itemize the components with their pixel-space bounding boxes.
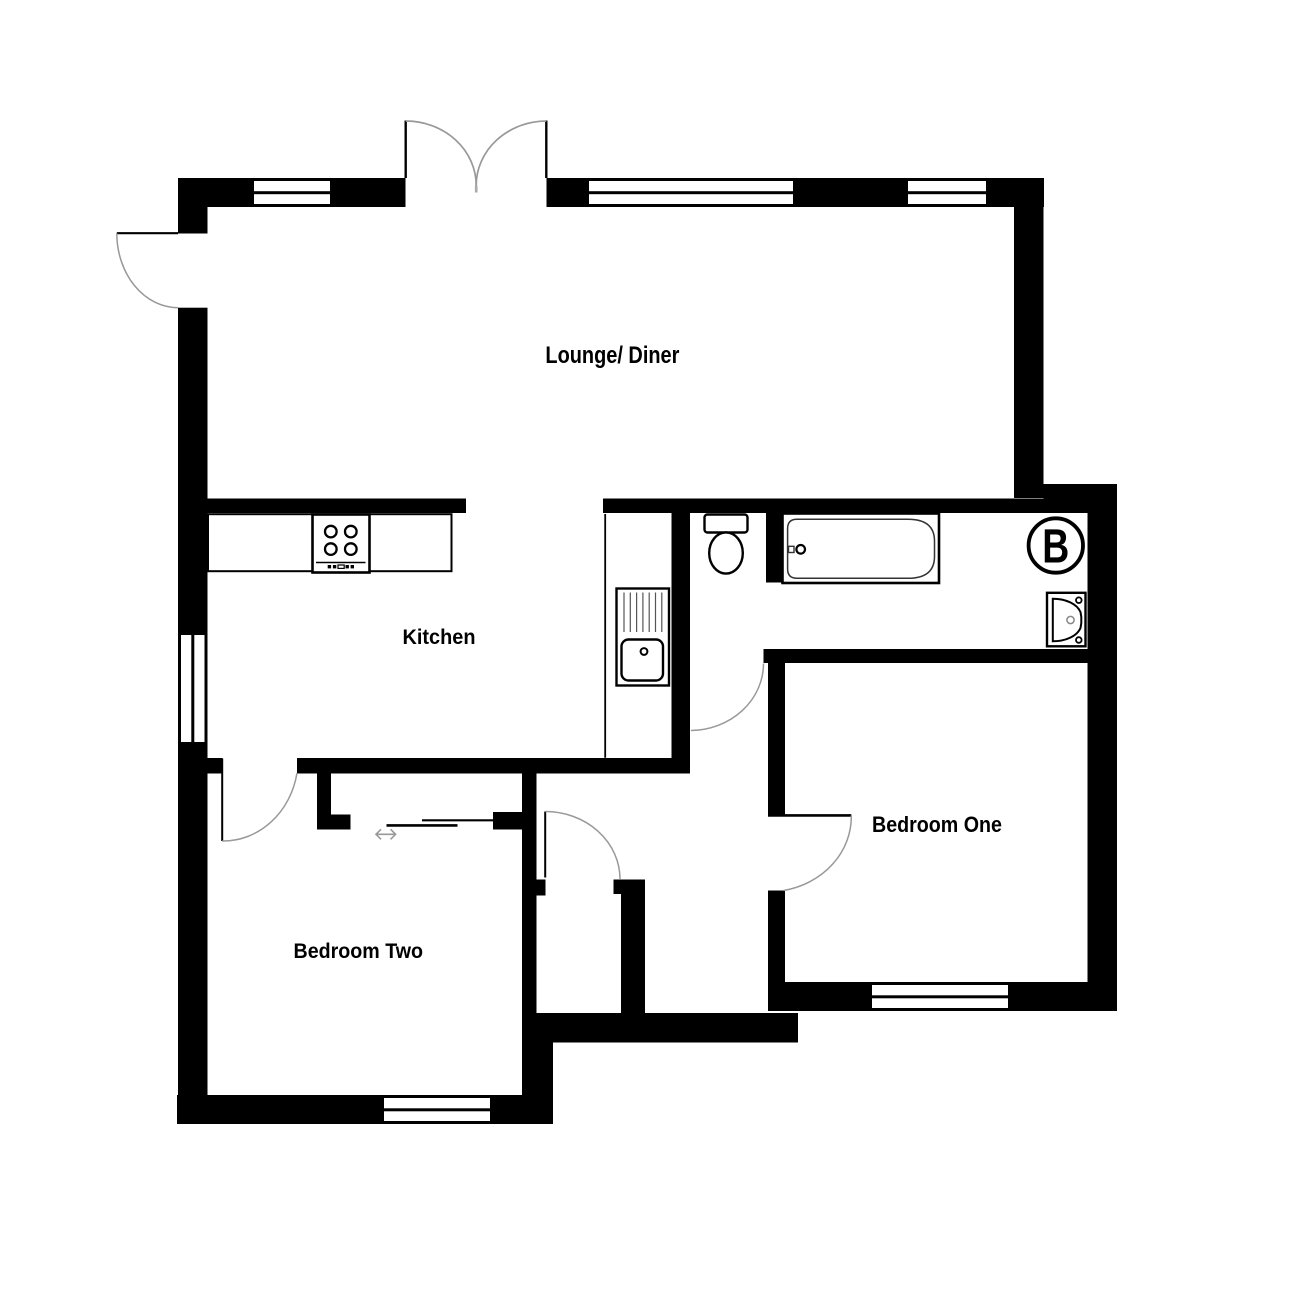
svg-text:Bedroom Two: Bedroom Two xyxy=(294,939,424,963)
svg-text:Bedroom One: Bedroom One xyxy=(872,812,1002,837)
svg-text:Kitchen: Kitchen xyxy=(403,625,476,649)
svg-text:B: B xyxy=(1042,521,1069,574)
svg-text:Lounge/ Diner: Lounge/ Diner xyxy=(545,342,679,369)
